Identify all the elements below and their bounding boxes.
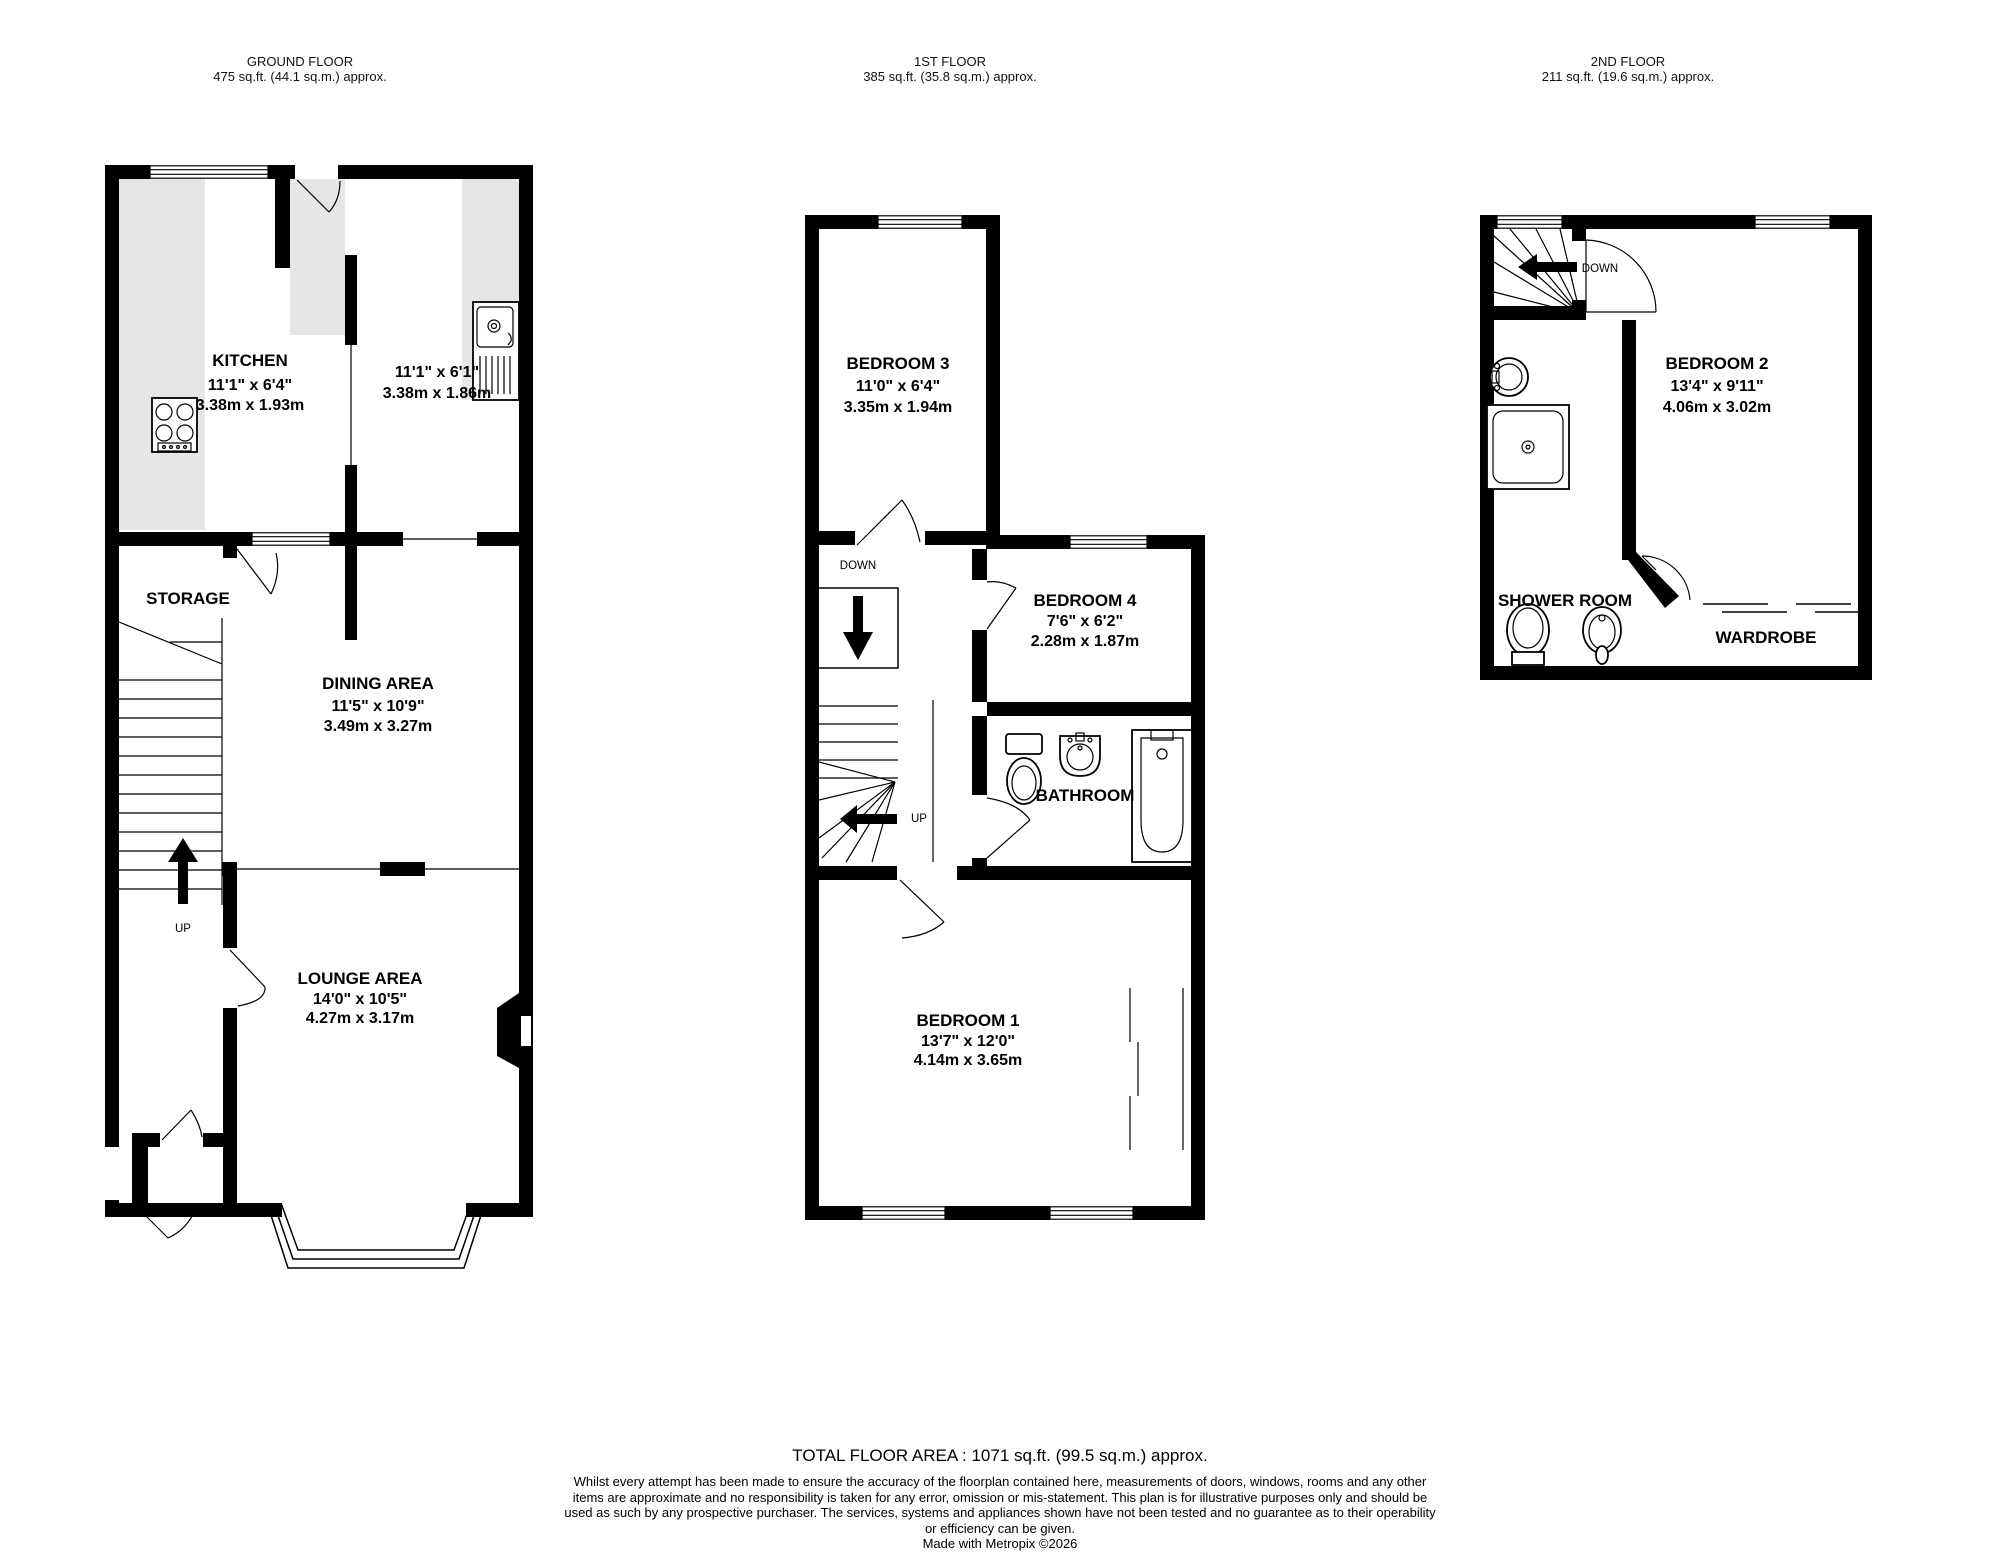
disclaimer-text: Whilst every attempt has been made to en… (560, 1474, 1440, 1536)
storage-label: STORAGE (146, 589, 230, 608)
bedroom3-door (857, 500, 920, 545)
hatch-window (252, 532, 330, 546)
second-floor-area: 211 sq.ft. (19.6 sq.m.) approx. (1428, 69, 1828, 84)
bathroom-door (987, 798, 1030, 858)
second-down-label: DOWN (1582, 263, 1618, 275)
hall-door (162, 1110, 202, 1140)
metropix-credit: Made with Metropix ©2026 (500, 1536, 1500, 1552)
bedroom1-window-right (1050, 1206, 1133, 1220)
bedroom4-label: BEDROOM 4 (1034, 591, 1138, 610)
bedroom4-metric: 2.28m x 1.87m (1031, 633, 1140, 650)
bedroom2-imperial: 13'4" x 9'11" (1670, 378, 1763, 395)
lounge-metric: 4.27m x 3.17m (306, 1010, 415, 1027)
bedroom1-label: BEDROOM 1 (917, 1011, 1020, 1030)
bedroom1-metric: 4.14m x 3.65m (914, 1052, 1023, 1069)
first-floor-plan: BEDROOM 3 11'0" x 6'4" 3.35m x 1.94m DOW… (790, 200, 1210, 1240)
hob-icon (152, 398, 197, 452)
bathtub-icon (1132, 730, 1192, 862)
wall-sink-icon (1490, 358, 1528, 396)
built-in-wardrobe (1130, 988, 1183, 1150)
dining-imperial: 11'5" x 10'9" (331, 698, 424, 715)
pedestal-sink-icon (1583, 607, 1621, 664)
bedroom4-window (1070, 535, 1147, 549)
shower-room-label: SHOWER ROOM (1498, 591, 1632, 610)
down-arrow-icon (1518, 254, 1577, 280)
basin-icon (1060, 733, 1100, 776)
winder-stairs (1494, 229, 1580, 314)
lounge-door (230, 950, 265, 1006)
dining-metric: 3.49m x 3.27m (324, 718, 433, 735)
kitchen-metric: 3.38m x 1.93m (196, 397, 305, 414)
bedroom3-metric: 3.35m x 1.94m (844, 399, 953, 416)
total-floor-area: TOTAL FLOOR AREA : 1071 sq.ft. (99.5 sq.… (500, 1446, 1500, 1466)
stair-window (1497, 215, 1562, 229)
dining-label: DINING AREA (322, 674, 434, 693)
kitchen-counters (119, 179, 519, 530)
bedroom1-window-left (862, 1206, 945, 1220)
shower-tray-icon (1487, 405, 1569, 489)
opening-lines (237, 345, 519, 869)
kitchen-area2-imperial: 11'1" x 6'1" (395, 364, 479, 381)
staircase-up (119, 618, 222, 905)
bedroom3-imperial: 11'0" x 6'4" (856, 378, 940, 395)
wardrobe-rails (1703, 604, 1858, 612)
doors (1586, 240, 1690, 600)
kitchen-imperial: 11'1" x 6'4" (208, 377, 292, 394)
stair-door (1586, 240, 1656, 312)
ground-floor-header: GROUND FLOOR 475 sq.ft. (44.1 sq.m.) app… (100, 54, 500, 84)
ground-floor-title: GROUND FLOOR (100, 54, 500, 69)
ground-floor-plan: KITCHEN 11'1" x 6'4" 3.38m x 1.93m 11'1"… (100, 160, 560, 1300)
bedroom3-window (878, 215, 962, 229)
second-floor-plan: DOWN BEDROOM 2 13'4" x 9'11" 4.06m x 3.0… (1470, 205, 1880, 695)
first-floor-title: 1ST FLOOR (750, 54, 1150, 69)
lounge-label: LOUNGE AREA (298, 969, 423, 988)
bedroom2-label: BEDROOM 2 (1666, 354, 1769, 373)
first-up-label: UP (911, 813, 927, 825)
bedroom2-metric: 4.06m x 3.02m (1663, 399, 1772, 416)
bedroom1-door (900, 880, 944, 938)
lounge-imperial: 14'0" x 10'5" (313, 991, 407, 1008)
ground-floor-area: 475 sq.ft. (44.1 sq.m.) approx. (100, 69, 500, 84)
bedroom4-door (987, 582, 1016, 629)
bedroom1-imperial: 13'7" x 12'0" (921, 1033, 1015, 1050)
first-down-label: DOWN (840, 560, 876, 572)
bedroom3-label: BEDROOM 3 (847, 354, 950, 373)
kitchen-window (150, 165, 268, 179)
ground-up-label: UP (175, 923, 191, 935)
footer: TOTAL FLOOR AREA : 1071 sq.ft. (99.5 sq.… (500, 1446, 1500, 1552)
first-floor-area: 385 sq.ft. (35.8 sq.m.) approx. (750, 69, 1150, 84)
second-floor-title: 2ND FLOOR (1428, 54, 1828, 69)
kitchen-label: KITCHEN (212, 351, 288, 370)
second-floor-header: 2ND FLOOR 211 sq.ft. (19.6 sq.m.) approx… (1428, 54, 1828, 84)
up-arrow-icon (168, 838, 198, 904)
floorplan-page: { "floors": [ {"id": "ground", "title": … (0, 0, 2000, 1568)
storage-door (237, 549, 278, 594)
bedroom2-window (1755, 215, 1830, 229)
bathroom-label: BATHROOM (1036, 786, 1135, 805)
down-arrow-icon (843, 596, 873, 660)
bedroom4-imperial: 7'6" x 6'2" (1047, 613, 1123, 630)
toilet-icon (1507, 604, 1549, 665)
first-floor-header: 1ST FLOOR 385 sq.ft. (35.8 sq.m.) approx… (750, 54, 1150, 84)
kitchen-area2-metric: 3.38m x 1.86m (383, 385, 492, 402)
wardrobe-label: WARDROBE (1715, 628, 1816, 647)
